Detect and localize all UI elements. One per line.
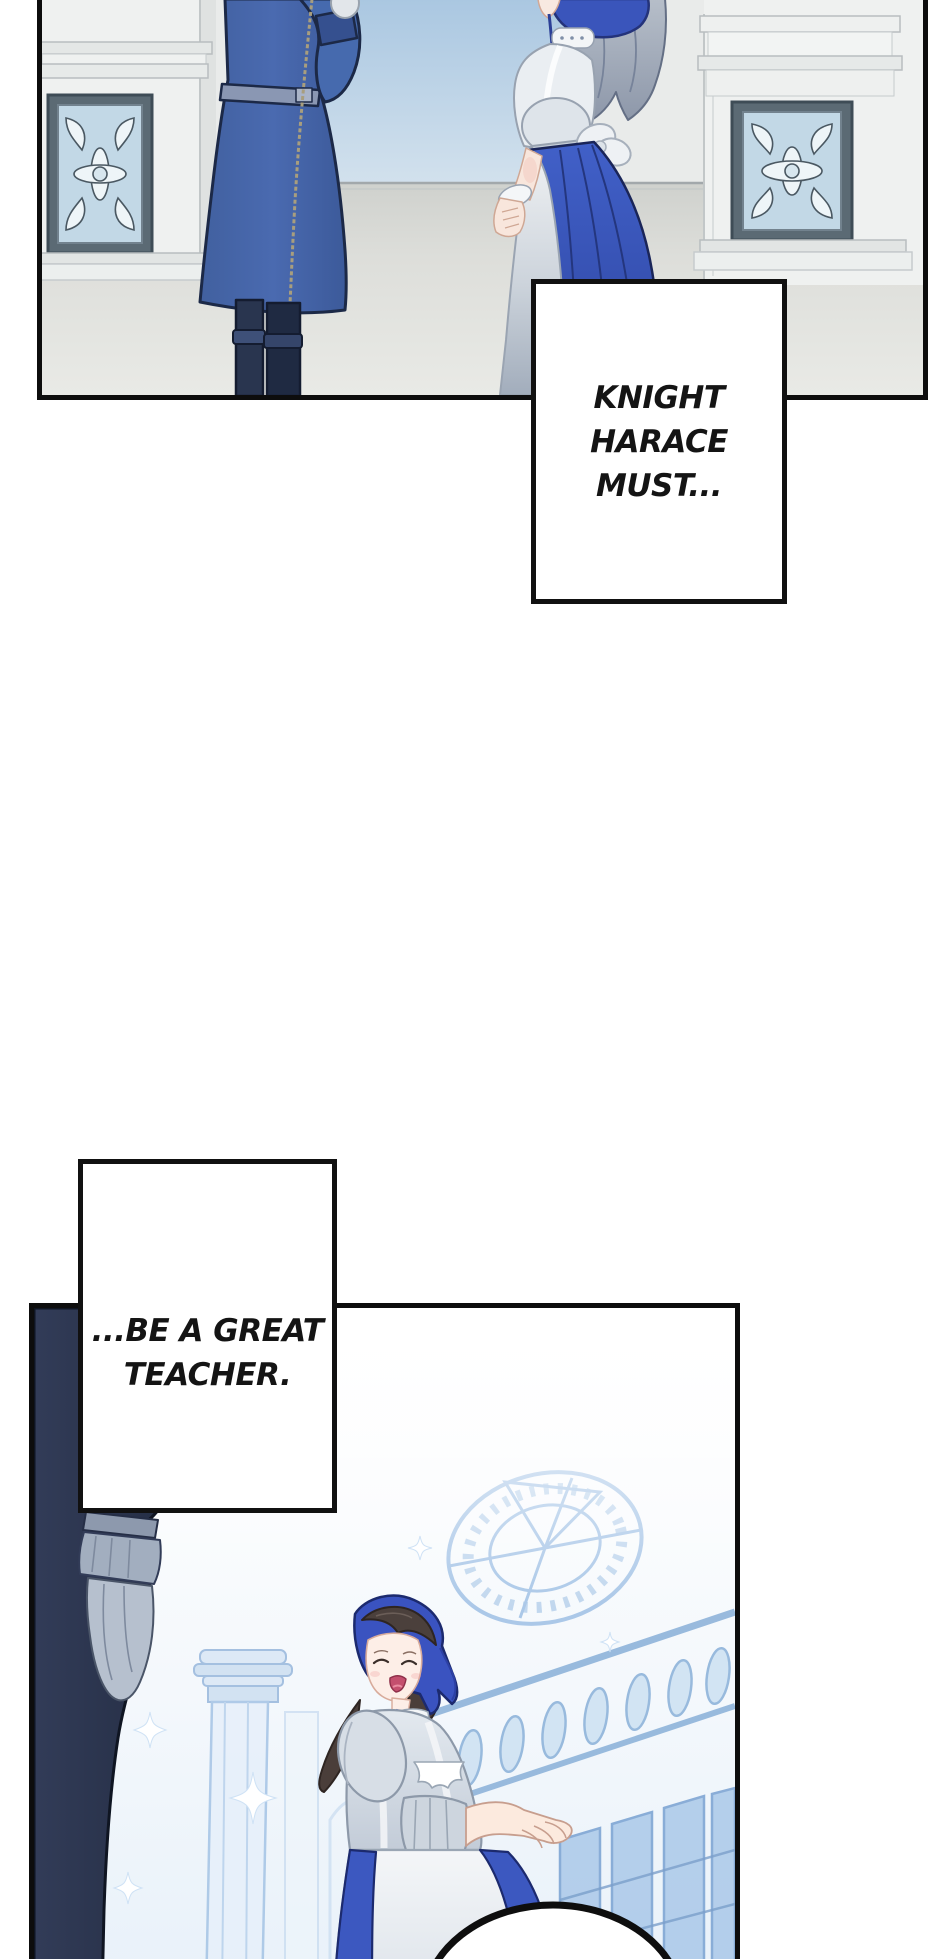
speech-line: KNIGHT bbox=[593, 376, 724, 420]
right-ornament-square bbox=[732, 102, 852, 240]
speech-line: TEACHER. bbox=[124, 1353, 291, 1397]
left-pillar bbox=[42, 0, 216, 280]
speech-line: HARACE bbox=[590, 420, 728, 464]
comic-page: KNIGHT HARACE MUST... ...BE A GREAT TEAC… bbox=[0, 0, 940, 1959]
left-ornament-square bbox=[48, 95, 152, 253]
right-pillar bbox=[694, 0, 923, 285]
speech-line: MUST... bbox=[596, 464, 722, 508]
panel-top bbox=[37, 0, 928, 400]
speech-box-1: KNIGHT HARACE MUST... bbox=[531, 279, 787, 604]
panel-top-art bbox=[42, 0, 923, 395]
speech-line: ...BE A GREAT bbox=[92, 1309, 324, 1353]
speech-box-2: ...BE A GREAT TEACHER. bbox=[78, 1159, 337, 1513]
